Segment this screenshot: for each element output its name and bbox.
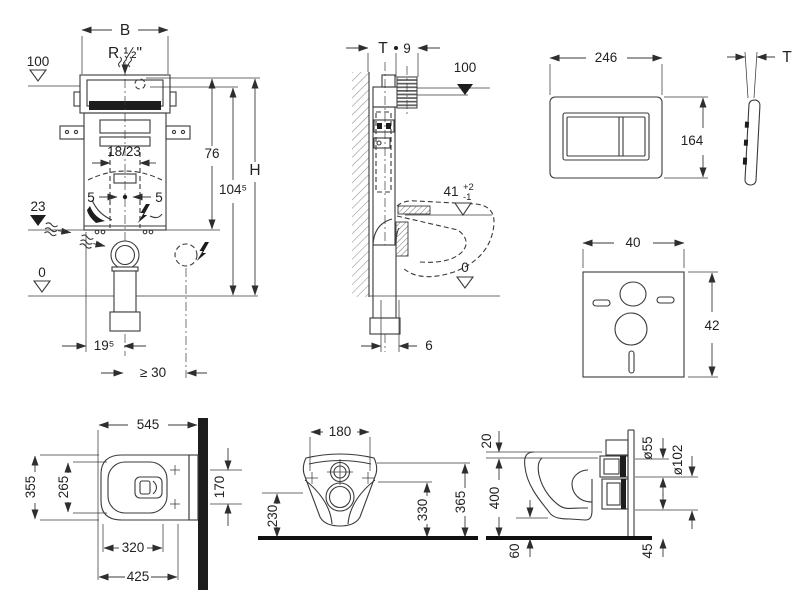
dim-23-label: 23 [30,199,45,214]
dim-425-label: 425 [127,569,150,584]
dim-230-label: 230 [265,505,280,528]
dim-9-label: 9 [403,41,411,56]
dim-104-5-label: 104⁵ [219,182,247,197]
dim-100-label: 100 [27,54,50,69]
pan-bowl [108,462,167,513]
level-marker-open [30,70,46,81]
dim-40-label: 40 [625,235,640,250]
dim-246-label: 246 [595,50,618,65]
dim-330-label: 330 [415,499,430,522]
dim-45-label: 45 [640,543,655,558]
flush-buttons [567,117,645,156]
cistern-side-view: T 9 100 41 +2 -1 0 6 [346,40,500,353]
dim-dia102-label: ø102 [670,445,685,476]
dim-180-label: 180 [329,424,352,439]
wall-bracket-right [166,126,190,139]
wall-bracket-left [60,126,84,139]
dim-320-label: 320 [122,540,145,555]
sound-insulation-mat-view: 40 42 [583,235,720,377]
power-outlet-marker [175,244,197,266]
level-marker-open [457,277,473,288]
wc-pan-dashed-outline [397,201,494,277]
wall-hatching [352,72,369,297]
pan-side-view: 20 400 60 ø55 ø102 45 [479,430,698,559]
dim-355-label: 355 [23,476,38,499]
dim-41-label: 41 [443,184,458,199]
dim-76-label: 76 [204,146,219,161]
dim-5-right-label: 5 [155,190,163,205]
dim-365-label: 365 [453,491,468,514]
flush-flow-icon [79,234,106,251]
dim-dia55-label: ø55 [640,436,655,459]
flush-plate-front-view: 246 164 [550,50,708,178]
dim-545-label: 545 [137,417,160,432]
tolerance-minus-label: -1 [463,192,471,203]
mounting-hole-marker [170,465,180,509]
dim-42-label: 42 [704,318,719,333]
drain-pipe [370,219,408,334]
level-marker-open [455,203,471,215]
dim-20-label: 20 [479,433,494,448]
cistern-front-view: B R ½" 100 18/23 5 5 23 0 76 104⁵ H [27,22,261,380]
dim-18-23-label: 18/23 [107,144,141,159]
dim-t-plate-label: T [782,49,792,66]
drain-bend-fitting [370,318,400,334]
lightning-icon [197,242,209,261]
pan-top-view: 545 355 265 170 320 425 [23,417,242,590]
dim-5-left-label: 5 [87,190,95,205]
dim-b-label: B [120,22,130,39]
level-marker-filled [457,84,473,95]
dim-100-side-label: 100 [454,60,477,75]
dim-400-label: 400 [487,487,502,510]
outlet-hole [326,483,354,511]
thread-size-label: R ½" [108,45,142,62]
dim-164-label: 164 [681,133,704,148]
level-0-side-label: 0 [461,260,469,275]
drain-bend-fitting [110,312,140,331]
level-marker-open [34,281,50,292]
pan-front-view: 180 230 330 365 [258,424,478,538]
level-marker-filled [30,215,46,226]
flush-plate-side-view: T [727,49,792,185]
dim-170-label: 170 [212,476,227,499]
dim-60-label: 60 [507,543,522,558]
pan-body [101,455,189,520]
drain-socket [110,241,140,331]
dim-t-label: T [378,40,388,57]
dim-265-label: 265 [56,476,71,499]
installation-dimension-drawing: B R ½" 100 18/23 5 5 23 0 76 104⁵ H [0,0,800,600]
dim-h-label: H [249,162,260,179]
dim-min-30-label: ≥ 30 [140,365,166,380]
dim-6-label: 6 [425,338,433,353]
level-0-label: 0 [38,265,46,280]
wall-section [198,418,208,590]
technical-drawing-page: B R ½" 100 18/23 5 5 23 0 76 104⁵ H [0,0,800,600]
dim-19-5-label: 19⁵ [94,338,115,353]
